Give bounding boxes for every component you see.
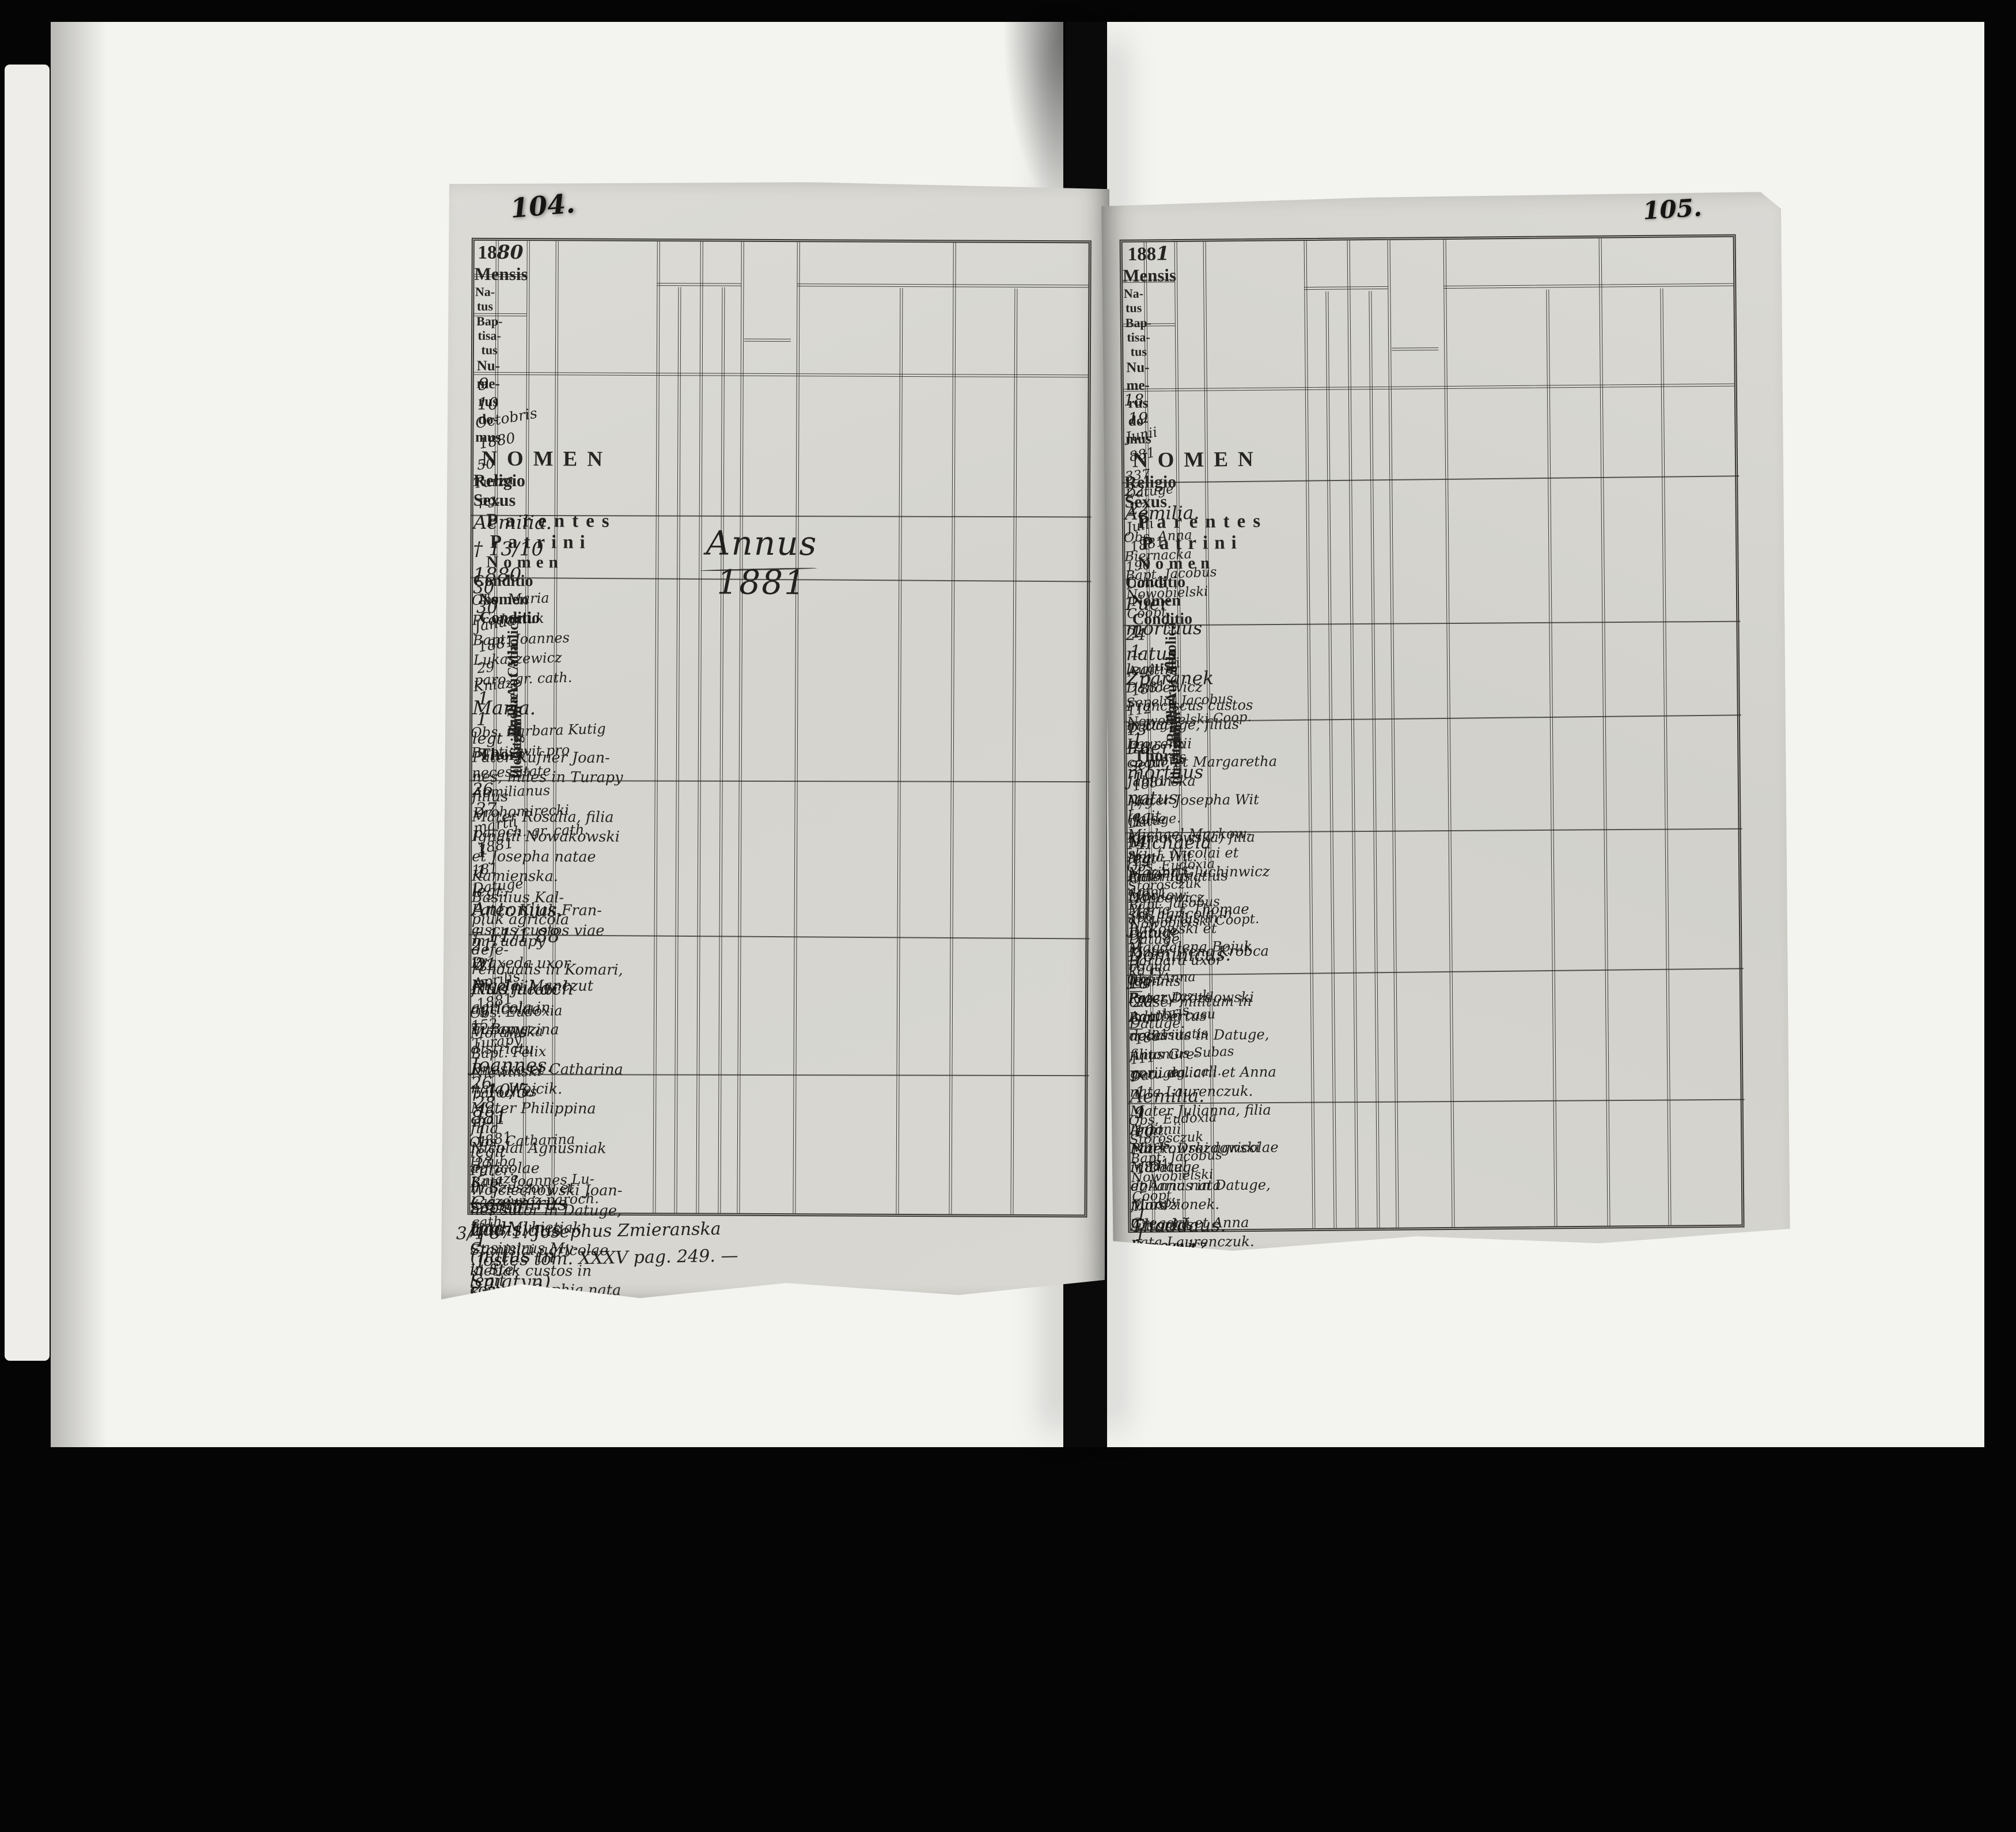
entry-house-number-line: Datug: [1126, 573, 1155, 593]
entry-patrini-line: Maria uxor Michae-: [1134, 1547, 1263, 1590]
entry-row: 2627martii1881181DatugeAntonius.† 11/1 8…: [472, 779, 1086, 938]
register-table: 1880MensisNa-tusBap-tisa-tusNu-me-rusdo-…: [470, 241, 1088, 1215]
entry-patrini: Demetrius Zatkonoverca vita cognatain Kn…: [468, 1633, 598, 1810]
entry-name: CasimirusLadislaus(natus in Sniatyn): [470, 1190, 567, 1296]
entry-row: 910Octobris188050Turzapg.Aemilia.† 13/10…: [473, 374, 1088, 517]
entry-patrini-line: caletor Wanskowa: [1134, 1526, 1263, 1548]
gutter-top-shadow: [1002, 22, 1066, 212]
entry-house-number-line: Datuge: [1128, 925, 1158, 945]
entry-patrini-line: Demetrius Zatko: [468, 1633, 598, 1655]
entry-patrini-line: noverca vita cognata: [468, 1655, 598, 1699]
entry-name: Aemilia.† 13/10 1880: [473, 509, 570, 588]
entry-date: Aprilis1881: [471, 966, 529, 1016]
entry-natus-day: 24: [1126, 626, 1145, 644]
page-stack-shadow: [51, 22, 126, 1447]
entry-house-number-line: pg.: [475, 490, 505, 510]
entry-patrini-line: in Datuge.: [1135, 1630, 1264, 1652]
entry-house-number: 106Datuge: [1127, 908, 1158, 945]
entry-parentes-line: filius Thaddaei organi et: [1134, 1515, 1287, 1554]
register-page-left: 104. 3/4 871. Josephus Zmieranska ostes …: [441, 180, 1109, 1307]
entry-natus-day: 18: [1129, 974, 1148, 993]
entry-parentes-line: Mater Thecla, filia Mathiae: [469, 1534, 623, 1574]
entry-row: 910Nbris18812TurapyThaddaus.† 28/11 881O…: [1130, 1099, 1742, 1230]
entry-date: martii1881: [472, 810, 530, 860]
entry-patrini: Joannes Kolanosutor inPopielnikiCatharin…: [468, 1548, 599, 1680]
entry-patrini-line: elis Markowski: [468, 1588, 598, 1611]
entry-natus-day: 9: [474, 374, 493, 394]
entry-parentes-line: Agnetis Mykietiuk.: [469, 1514, 623, 1535]
microfilm-scan: { "header": { "mensis": "Mensis", "natus…: [0, 0, 2016, 1462]
entry-name-line: Antonius.: [472, 896, 569, 923]
entry-house-number: 181Datuge: [470, 859, 502, 898]
entry-date: Octobris1881: [1128, 861, 1185, 909]
entry-house-number-line: Kniaze: [471, 1171, 501, 1191]
entry-parentes: Mykietiuk Casimiruscust. in Kniaze filiu…: [468, 1455, 623, 1634]
entry-parentes-line: et Catharina nata Pokorna.: [1133, 1467, 1286, 1507]
entry-house-number-line: Datuge: [472, 877, 502, 898]
entry-patrini-line: Popielniki: [468, 1592, 598, 1614]
entry-house-number: 23Kniaze: [469, 1153, 501, 1191]
entry-patrini: Gregorius Suchockocustos in DatugeMaria …: [468, 1478, 599, 1655]
entry-parentes-line: civium in Zamosci in Rastowia.: [1135, 1646, 1288, 1686]
entry-house-number-line: 50: [471, 454, 501, 475]
entry-name-line: Dominicus.: [1128, 943, 1225, 968]
entry-parentes-line: Mykietiuk Casimirus: [469, 1455, 623, 1495]
entry-patrini-line: Catharina uxor: [468, 1614, 598, 1636]
entry-patrini-line: custos in Datuge: [469, 1522, 599, 1545]
entry-parentes-line: Rosian et Joanna Rostaba: [1134, 1609, 1287, 1648]
entry-house-number: 29Kniaze: [471, 657, 503, 696]
entry-parentes: Pater: Andronis Nicolauscantor ecclesias…: [1133, 1440, 1288, 1686]
entry-patrini-line: in Kniaze: [468, 1699, 598, 1721]
entry-parentes-line: Ondrowicz agricolae et: [469, 1468, 623, 1509]
entry-house-number-line: 152: [469, 1015, 499, 1035]
entry-row: 3030Januarii188129KniazeMaria.Obs. Barba…: [472, 578, 1087, 782]
rule-under-legitimi: [744, 339, 791, 342]
page-number: 104.: [509, 188, 576, 224]
entry-name-line: Casimirus: [470, 1190, 567, 1217]
entry-patrini: Gregorius Aywasconductor bonorumTurapy e…: [1135, 1685, 1265, 1832]
entry-natus-day: 9: [1130, 1104, 1149, 1122]
entry-name-line: Ladislaus: [470, 1216, 567, 1243]
entry-name-line: Aemilia.: [473, 509, 571, 536]
entry-patrini-line: paro. gr. cath.: [1136, 1810, 1265, 1832]
entry-patrini-line: Josephi Hauba: [468, 1636, 598, 1659]
entry-natus-day: 26: [471, 1073, 490, 1093]
entry-parentes-line: Katarina Kulik.: [1134, 1553, 1286, 1573]
entry-date: Nbris1881: [1130, 1131, 1188, 1180]
entry-date: Junii881: [1124, 419, 1181, 467]
entry-natus-day: 18: [1124, 391, 1143, 410]
entry-patrini-line: Paulina Lukasiewicz: [1136, 1768, 1265, 1811]
entry-patrini-line: lis Markowski agr.: [1134, 1589, 1264, 1632]
rule-under-mensis: [1123, 323, 1175, 327]
entry-patrini-line: Turapy et: [1135, 1747, 1265, 1769]
rule-under-year: [475, 274, 527, 277]
rule-under-legitimi: [1392, 347, 1439, 351]
entry-patrini-line: Gregorius Suchocko: [469, 1478, 599, 1522]
entry-natus-day: 13: [1127, 721, 1146, 739]
entry-parentes-line: Mater: Malvina filia Vincentii: [1134, 1571, 1287, 1610]
entry-patrini-line: agricola in Datuge.: [468, 1610, 598, 1655]
entry-house-number: 152Turapy: [469, 1015, 501, 1053]
entry-row: 24-Augusti1881112DatugPuer mortuusnatus1…: [1126, 620, 1737, 721]
entry-patrini-line: sutor in: [469, 1570, 599, 1592]
entry-row: 1820Octobris1881111DatugeAemilia.Obs. Eu…: [1129, 969, 1741, 1104]
entry-house-number: 179Datuge.: [1126, 796, 1157, 832]
entry-name-line: Maria.: [472, 695, 570, 721]
entry-parentes-line: artis et Matild nata: [468, 1593, 622, 1614]
rule-under-mensis: [474, 313, 526, 316]
entry-date: Januarii1881: [473, 608, 531, 658]
entry-natus-day: 26: [472, 779, 491, 799]
entry-parentes-line: cust. in Kniaze filius: [469, 1494, 623, 1515]
entry-name: Maria.: [472, 695, 570, 721]
entry-parentes-line: Antonia nata Skulska.: [469, 1508, 623, 1549]
entry-row: 1318Septbris1881179Datuge.MichaëlaObs. E…: [1127, 716, 1738, 833]
entry-name: Dominicus.: [1128, 943, 1225, 968]
entry-house-number: 2Turapy: [1129, 1179, 1161, 1216]
entry-row: 1414Octobris1881106DatugeDominicus.Obs. …: [1128, 828, 1740, 974]
entry-date: Julii1881: [1125, 509, 1183, 558]
register-table: 1881MensisNa-tusBap-tisa-tusNu-me-rusdo-…: [1123, 237, 1742, 1230]
entry-patrini-line: Joannes Kolano: [469, 1548, 599, 1570]
entry-house-number: 111Datuge: [1128, 1049, 1159, 1086]
entry-patrini-line: lii Stryhyjczuk: [1133, 1487, 1263, 1509]
entry-natus-day: 30: [473, 578, 492, 597]
entry-house-number-line: 29: [471, 657, 501, 678]
entry-patrini-line: Maria uxor Micha-: [469, 1544, 599, 1588]
entry-natus-day: 14: [1128, 833, 1147, 851]
entry-house-number: 190Datug: [1123, 557, 1155, 593]
entry-row: 2121Aprilis1881152TurapyJoannes.† 10/5 8…: [471, 935, 1086, 1076]
entry-house-number-line: 23: [469, 1153, 499, 1174]
entry-patrini: Nicolaus Ceholnikcaletor WanskowaMaria u…: [1134, 1505, 1264, 1652]
entry-date: Octobris1880: [473, 405, 532, 455]
entry-parentes-line: Szymanski et civium: [469, 1573, 623, 1594]
entry-patrini-line: conductor bonorum: [1135, 1705, 1265, 1748]
entry-name-line: Thaddaus.: [1131, 1213, 1227, 1239]
entry-patrini-line: in Popielniki.: [468, 1658, 598, 1680]
entry-date: Octobris1881: [1129, 1002, 1187, 1050]
entry-date: Septbris1881: [1127, 748, 1184, 797]
entry-house-number-line: Turapy: [471, 1032, 501, 1053]
entry-house-number-line: 181: [470, 859, 500, 880]
entry-parentes-line: Kluska.: [468, 1613, 622, 1634]
entry-house-number-line: Turza: [473, 472, 503, 493]
entry-midwife-baptizer-line: Baptisavit pro necessitate: [471, 739, 611, 783]
entry-house-number-line: Kniaze: [473, 675, 503, 696]
entry-patrini-line: agricola in Datiwa: [1134, 1508, 1263, 1551]
entry-row: 2628maji188123KniazeCasimirusLadislaus(n…: [470, 1073, 1085, 1215]
entry-patrini-line: Praxeda uxor Basi-: [1133, 1445, 1263, 1489]
page-number: 105.: [1642, 193, 1702, 225]
entry-house-number: 50Turzapg.: [471, 454, 504, 510]
entry-patrini-line: uxor Joannis nota-: [468, 1743, 598, 1788]
register-page-right: 105. 1881MensisNa-tusBap-tisa-tusNu-me-r…: [1101, 192, 1790, 1265]
entry-natus-day: 21: [471, 935, 490, 955]
rule-under-religio-sexus: [657, 283, 741, 286]
entry-patrini-line: Barbara Glaser: [468, 1721, 598, 1743]
entry-house-number-line: Datuge.: [1127, 812, 1157, 832]
entry-patrini-line: Gregorius Aywas: [1135, 1685, 1264, 1706]
entry-house-number-line: Turapy: [1131, 1195, 1161, 1216]
entry-house-number-line: Datuge: [1130, 1066, 1159, 1086]
entry-row: 1819Junii881337DatugeAemilia.Obs. Anna B…: [1124, 386, 1735, 482]
entry-patrini-line: rii in Datuge.: [468, 1787, 598, 1810]
entry-parentes-line: cantor ecclesiasticus in Turapy: [1133, 1477, 1286, 1516]
entry-date: maji1881: [471, 1104, 529, 1154]
entry-natus-day: 22: [1124, 482, 1143, 500]
entry-patrini-line: Nicolaus Ceholnik: [1134, 1505, 1263, 1527]
entry-date: Augusti1881: [1126, 653, 1184, 702]
entry-row: 2222Julii1881190DatugPuer mortuusnatusZp…: [1124, 476, 1736, 626]
rule-under-year: [1123, 279, 1174, 283]
page-stack-edge: [5, 65, 50, 1361]
